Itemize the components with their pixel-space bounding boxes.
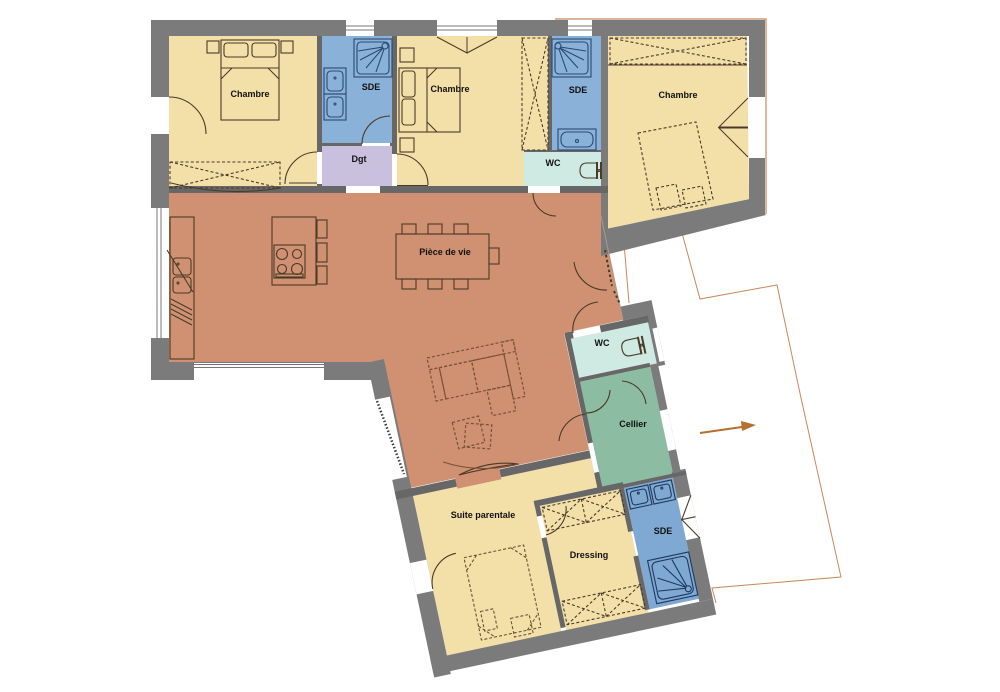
svg-text:Dgt: Dgt: [352, 154, 367, 164]
svg-text:Chambre: Chambre: [430, 84, 469, 94]
svg-text:Dressing: Dressing: [570, 550, 609, 560]
svg-text:WC: WC: [546, 158, 561, 168]
svg-text:SDE: SDE: [569, 85, 588, 95]
svg-text:SDE: SDE: [362, 82, 381, 92]
svg-text:Suite parentale: Suite parentale: [451, 510, 516, 520]
svg-text:WC: WC: [595, 338, 610, 348]
svg-text:Chambre: Chambre: [658, 90, 697, 100]
svg-text:Cellier: Cellier: [619, 419, 647, 429]
svg-text:Chambre: Chambre: [230, 89, 269, 99]
svg-text:Pièce de vie: Pièce de vie: [419, 247, 471, 257]
svg-text:SDE: SDE: [654, 526, 673, 536]
